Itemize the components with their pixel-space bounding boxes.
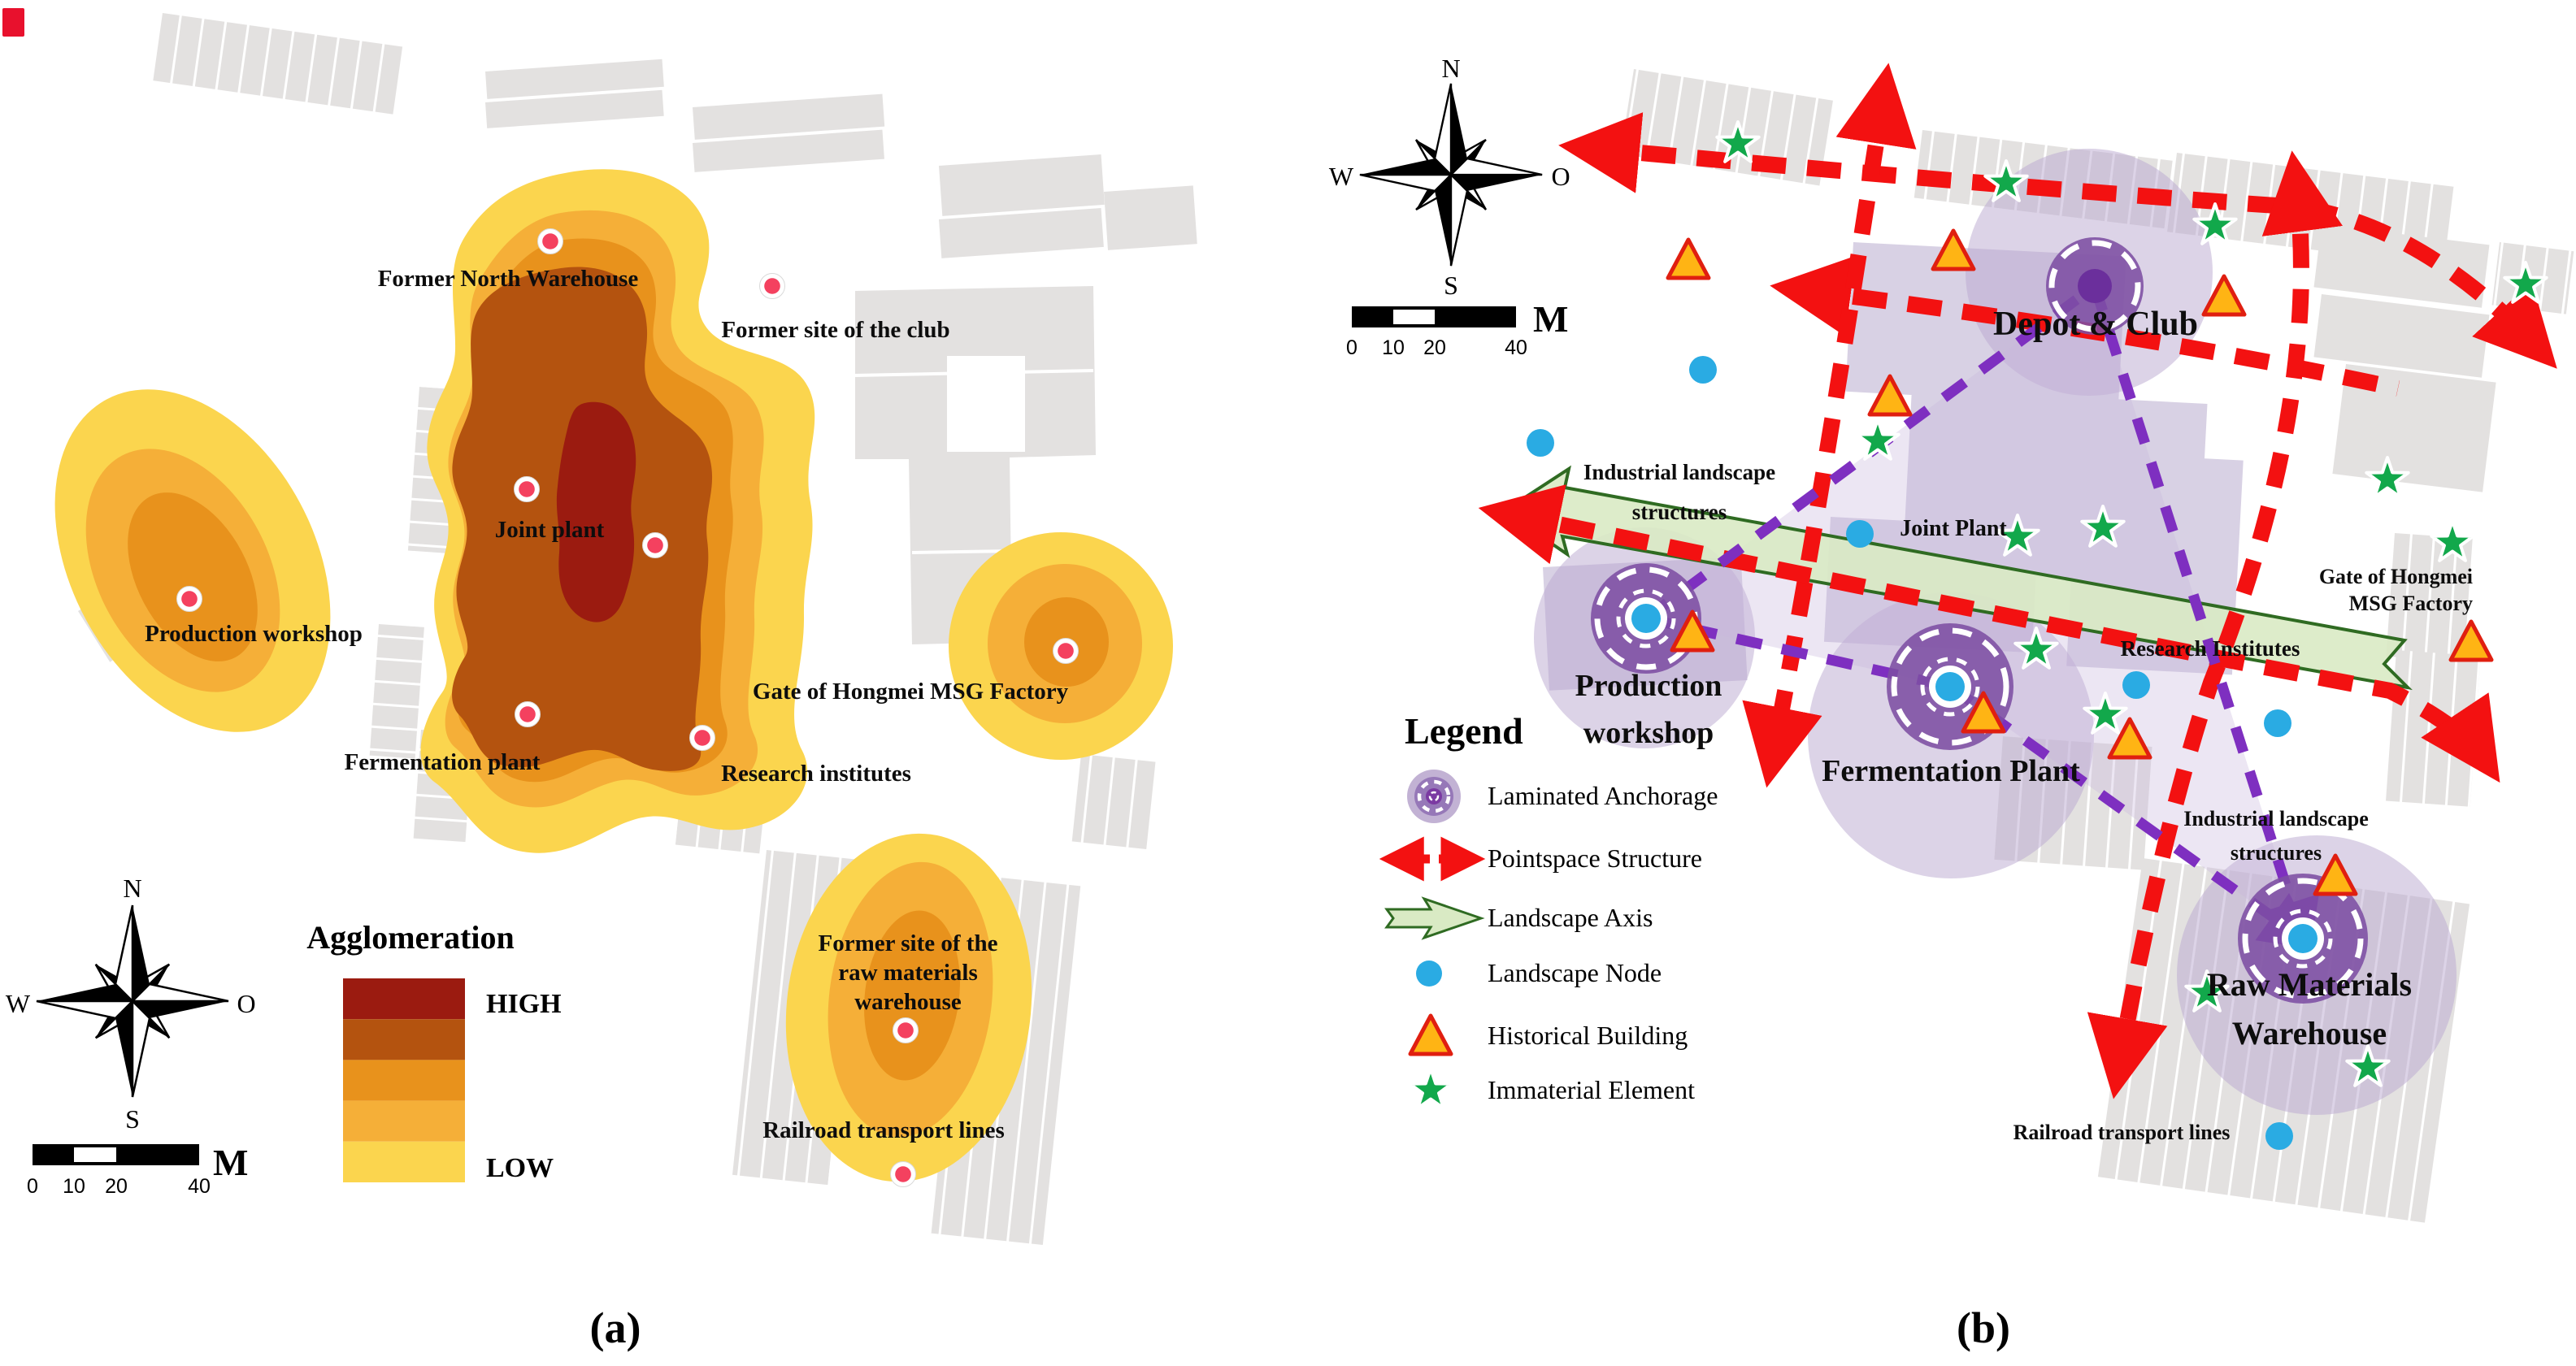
landscape-node	[1689, 356, 1717, 384]
caption-b: (b)	[1957, 1303, 2010, 1352]
caption-a: (a)	[590, 1303, 641, 1352]
legend-b-item-label: Landscape Node	[1488, 958, 1662, 987]
landscape-node	[2265, 1122, 2293, 1150]
scale-b-unit: M	[1533, 298, 1568, 340]
site-dot-fermentation-plant	[515, 702, 541, 727]
site-label-fermentation-plant: Fermentation plant	[345, 749, 541, 775]
site-label-former-north-warehouse: Former North Warehouse	[378, 266, 639, 292]
site-label-gate-of-hongmei-msg-factory: Gate of Hongmei MSG Factory	[753, 679, 1069, 705]
site-label-joint-plant: Joint plant	[495, 517, 605, 543]
compass-b-o: O	[1551, 162, 1570, 191]
compass-b-s: S	[1444, 271, 1458, 300]
site-dot-former-site-of-the-club	[760, 274, 785, 299]
heat-central-l5	[557, 402, 636, 622]
scale-b-tick-10: 10	[1382, 336, 1405, 359]
compass-b: N W O S	[1329, 54, 1570, 300]
anchorage-production-workshop	[1591, 563, 1701, 674]
scale-a-tick-0: 0	[27, 1175, 38, 1198]
immaterial-element-icon	[1410, 1069, 1451, 1108]
scale-b-tick-0: 0	[1346, 336, 1358, 359]
compass-a-s: S	[125, 1104, 140, 1134]
scale-a-tick-40: 40	[188, 1175, 211, 1198]
site-dot-joint-plant	[515, 477, 540, 502]
map-label-railroad-transport-lines: Railroad transport lines	[2013, 1121, 2231, 1144]
scale-a-tick-20: 20	[105, 1175, 128, 1198]
scale-bar-b: 0 10 20 40 M	[1346, 298, 1568, 359]
legend-b-item-label: Laminated Anchorage	[1488, 781, 1718, 810]
legend-a-high: HIGH	[486, 989, 562, 1019]
legend-a-swatch-5	[343, 1142, 465, 1182]
compass-a: N W O S	[6, 874, 256, 1134]
site-dot-former-raw-materials-warehouse	[893, 1018, 919, 1043]
site-dot-railroad-transport-lines	[891, 1162, 916, 1187]
landscape-node	[1846, 520, 1874, 548]
legend-b-item-label: Immaterial Element	[1488, 1075, 1695, 1104]
compass-a-o: O	[237, 989, 255, 1018]
legend-a-swatch-2	[343, 1019, 465, 1060]
legend-b-item-label: Historical Building	[1488, 1021, 1688, 1050]
historical-building-marker	[1668, 240, 1709, 278]
site-dot-gate-of-hongmei-msg-factory	[1053, 639, 1079, 664]
map-label-depot-club: Depot & Club	[1993, 306, 2198, 343]
landscape-node	[2264, 709, 2291, 737]
scale-a-unit: M	[213, 1142, 248, 1183]
panel-a-agglomeration-map: Former North WarehouseFormer site of the…	[0, 8, 1197, 1352]
site-dot-research-institutes	[690, 726, 715, 751]
map-label-joint-plant: Joint Plant	[1900, 516, 2007, 541]
legend-b-title: Legend	[1405, 710, 1523, 752]
legend-b-item-label: Landscape Axis	[1488, 903, 1653, 932]
legend-a-title: Agglomeration	[306, 919, 515, 956]
compass-b-w: W	[1329, 162, 1354, 191]
legend-b-item-label: Pointspace Structure	[1488, 843, 1702, 873]
map-label-fermentation-plant: Fermentation Plant	[1822, 754, 2080, 788]
compass-a-w: W	[6, 989, 31, 1018]
site-dot-former-north-warehouse	[538, 229, 563, 254]
legend-a-swatch-4	[343, 1101, 465, 1142]
legend-b: Legend Laminated Anchorage Pointspace St…	[1387, 710, 1718, 1108]
legend-a-swatch-1	[343, 978, 465, 1019]
figure-canvas: Former North WarehouseFormer site of the…	[0, 0, 2576, 1366]
landscape-node	[2122, 671, 2150, 699]
historical-building-icon	[1410, 1016, 1451, 1054]
scale-b-tick-40: 40	[1505, 336, 1527, 359]
landscape-node	[1527, 429, 1554, 457]
site-label-railroad-transport-lines: Railroad transport lines	[762, 1117, 1005, 1143]
panel-b-planning-map: Depot & ClubIndustrial landscapestructur…	[1329, 54, 2574, 1352]
site-label-research-institutes: Research institutes	[721, 761, 911, 787]
site-label-production-workshop: Production workshop	[145, 621, 363, 647]
site-dot-extra	[643, 533, 668, 558]
legend-a-swatch-3	[343, 1060, 465, 1100]
scale-b-tick-20: 20	[1423, 336, 1446, 359]
legend-a-low: LOW	[486, 1153, 554, 1183]
red-corner-badge	[2, 8, 24, 37]
compass-a-n: N	[123, 874, 141, 903]
legend-a: Agglomeration HIGH LOW	[306, 919, 561, 1183]
scale-a-tick-10: 10	[63, 1175, 85, 1198]
site-dot-production-workshop	[177, 587, 202, 612]
laminated-anchorage-icon	[1407, 770, 1461, 823]
map-label-research-institutes: Research Institutes	[2121, 636, 2300, 661]
compass-b-n: N	[1441, 54, 1460, 83]
landscape-axis-icon	[1387, 899, 1481, 938]
landscape-node-icon	[1416, 961, 1442, 987]
scale-bar-a: 0 10 20 40 M	[27, 1142, 248, 1198]
site-label-former-site-of-the-club: Former site of the club	[721, 317, 949, 343]
